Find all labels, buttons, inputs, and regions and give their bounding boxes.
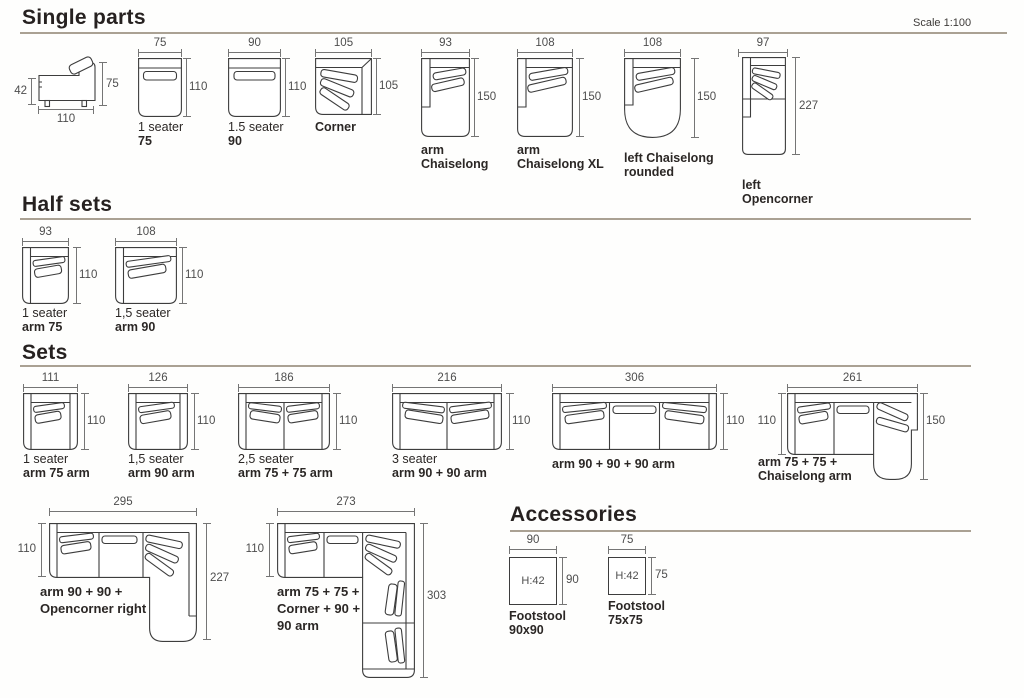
- top-view-left-opencorner: [742, 57, 786, 155]
- dim-width-set-216: 216: [392, 372, 502, 388]
- dim-line: [392, 387, 502, 388]
- dim-line-depth: [474, 58, 475, 137]
- dim-depth: 110: [79, 269, 97, 281]
- caption-set-186: 2,5 seater arm 75 + 75 arm: [238, 453, 333, 480]
- dim-width-corner: 105: [315, 37, 372, 53]
- dim-value: 108: [517, 37, 573, 50]
- dim-depth: 110: [512, 415, 530, 427]
- dim-width-set-273: 273: [277, 496, 415, 512]
- dim-depth: 227: [799, 100, 818, 112]
- dim-value: 90: [509, 534, 557, 547]
- top-view-footstool-75: H:42: [608, 557, 646, 595]
- top-view-halfset-15-seater: [115, 247, 177, 304]
- dim-line-depth: [194, 393, 195, 450]
- dim-width-halfset-108: 108: [115, 226, 177, 242]
- dim-line-depth-right: [923, 393, 924, 480]
- dim-value: 75: [608, 534, 646, 547]
- dim-depth: 110: [87, 415, 105, 427]
- dim-line-depth: [651, 557, 652, 595]
- dim-line: [787, 387, 918, 388]
- dim-line: [552, 387, 717, 388]
- side-view-sofa-drawing: [38, 60, 98, 108]
- dim-total-height: 75: [106, 78, 119, 90]
- dim-line: [115, 241, 177, 242]
- top-view-set-126: [128, 393, 188, 450]
- dim-line: [238, 387, 330, 388]
- dim-line-depth-right: [423, 523, 424, 678]
- top-view-arm-chaiselong-xl: [517, 58, 573, 137]
- caption-set-273: arm 75 + 75 + Corner + 90 + 90 arm: [277, 583, 360, 634]
- dim-width-footstool-75: 75: [608, 534, 646, 550]
- dim-line: [624, 52, 681, 53]
- section-rule: [20, 365, 971, 367]
- dim-line: [509, 549, 557, 550]
- caption-set-306: arm 90 + 90 + 90 arm: [552, 458, 675, 472]
- dim-width-15seater90: 90: [228, 37, 281, 53]
- dim-line-depth: [579, 58, 580, 137]
- caption-set-216: 3 seater arm 90 + 90 arm: [392, 453, 487, 480]
- dim-value: 306: [552, 372, 717, 385]
- caption-footstool-75: Footstool 75x75: [608, 600, 665, 627]
- dim-line: [277, 511, 415, 512]
- dim-depth: 110: [189, 81, 207, 93]
- dim-line-depth: [76, 247, 77, 304]
- dim-line: [228, 52, 281, 53]
- caption-set-295: arm 90 + 90 + Opencorner right: [40, 583, 146, 617]
- top-view-set-216: [392, 393, 502, 450]
- dim-seat-height: 42: [10, 85, 27, 97]
- dim-line: [38, 109, 94, 110]
- footstool-height-label: H:42: [615, 570, 638, 582]
- dim-depth: 105: [379, 80, 398, 92]
- top-view-15-seater-90: [228, 58, 281, 117]
- dim-line: [738, 52, 788, 53]
- dim-depth: 110: [288, 81, 306, 93]
- dim-line-depth: [509, 393, 510, 450]
- caption-set-261: arm 75 + 75 + Chaiselong arm: [758, 456, 852, 483]
- caption-halfset-1-seater: 1 seater arm 75: [22, 307, 67, 334]
- dim-line-depth: [182, 247, 183, 304]
- section-title-accessories: Accessories: [510, 503, 637, 527]
- dim-value: 273: [277, 496, 415, 509]
- dim-value: 261: [787, 372, 918, 385]
- dim-depth: 150: [582, 91, 601, 103]
- dim-width-halfset-93: 93: [22, 226, 69, 242]
- dim-value: 108: [624, 37, 681, 50]
- top-view-1-seater-75: [138, 58, 182, 117]
- dim-value: 97: [738, 37, 788, 50]
- dim-depth: 110: [339, 415, 357, 427]
- dim-depth: 110: [185, 269, 203, 281]
- dim-line: [517, 52, 573, 53]
- dim-value: 105: [315, 37, 372, 50]
- dim-width-set-306: 306: [552, 372, 717, 388]
- dim-width-1seater75: 75: [138, 37, 182, 53]
- dim-line: [608, 549, 646, 550]
- top-view-set-186: [238, 393, 330, 450]
- dim-depth-sideview: 110: [38, 109, 94, 126]
- top-view-footstool-90: H:42: [509, 557, 557, 605]
- section-title-half-sets: Half sets: [22, 193, 112, 217]
- dim-width-footstool-90: 90: [509, 534, 557, 550]
- dim-line-depth: [694, 58, 695, 138]
- caption-corner: Corner: [315, 121, 356, 135]
- dim-depth-left: 110: [10, 543, 36, 555]
- dim-value: 295: [49, 496, 197, 509]
- dim-line-depth: [795, 57, 796, 155]
- sofa-spec-sheet: Single parts Scale 1:100 42 75 110 75 11…: [0, 0, 1024, 698]
- caption-arm-chaiselong: arm Chaiselong: [421, 144, 488, 171]
- dim-line: [421, 52, 470, 53]
- dim-depth: 150: [477, 91, 496, 103]
- dim-line-depth-left: [781, 393, 782, 455]
- dim-line-depth-left: [41, 523, 42, 577]
- caption-arm-chaiselong-xl: arm Chaiselong XL: [517, 144, 604, 171]
- caption-left-opencorner: left Opencorner: [742, 179, 813, 206]
- dim-width-set-186: 186: [238, 372, 330, 388]
- dim-depth: 75: [655, 569, 668, 581]
- dim-value: 186: [238, 372, 330, 385]
- caption-set-126: 1,5 seater arm 90 arm: [128, 453, 195, 480]
- dim-depth-right: 303: [427, 590, 446, 602]
- dim-depth: 150: [697, 91, 716, 103]
- top-view-left-chaiselong-rounded: [624, 58, 681, 138]
- dim-line: [128, 387, 188, 388]
- dim-line-depth: [186, 58, 187, 117]
- top-view-arm-chaiselong: [421, 58, 470, 137]
- dim-width-set-111: 111: [23, 372, 78, 388]
- dim-line: [49, 511, 197, 512]
- section-rule: [20, 218, 971, 220]
- dim-depth: 90: [566, 574, 579, 586]
- dim-value: 75: [138, 37, 182, 50]
- dim-width-set-295: 295: [49, 496, 197, 512]
- dim-depth-right: 227: [210, 572, 229, 584]
- dim-width-set-126: 126: [128, 372, 188, 388]
- dim-value: 90: [228, 37, 281, 50]
- dim-line-depth: [336, 393, 337, 450]
- dim-value: 93: [22, 226, 69, 239]
- section-rule: [510, 530, 971, 532]
- dim-value: 93: [421, 37, 470, 50]
- caption-set-111: 1 seater arm 75 arm: [23, 453, 90, 480]
- dim-value: 111: [23, 372, 78, 385]
- dim-depth-right: 150: [926, 415, 945, 427]
- section-rule: [20, 32, 1007, 34]
- dim-depth: 110: [726, 415, 744, 427]
- section-title-sets: Sets: [22, 341, 68, 365]
- caption-1-seater-75: 1 seater 75: [138, 121, 183, 148]
- dim-width-set-261: 261: [787, 372, 918, 388]
- scale-note: Scale 1:100: [913, 17, 971, 29]
- dim-line-depth: [723, 393, 724, 450]
- dim-line-depth-left: [269, 523, 270, 577]
- dim-value: 216: [392, 372, 502, 385]
- dim-line: [315, 52, 372, 53]
- top-view-set-111: [23, 393, 78, 450]
- top-view-halfset-1-seater: [22, 247, 69, 304]
- dim-width-chaiselong-rounded: 108: [624, 37, 681, 53]
- section-title-single-parts: Single parts: [22, 6, 146, 30]
- caption-footstool-90: Footstool 90x90: [509, 610, 566, 637]
- caption-15-seater-90: 1.5 seater 90: [228, 121, 284, 148]
- caption-left-chaiselong-rounded: left Chaiselong rounded: [624, 152, 714, 179]
- top-view-corner: [315, 58, 372, 115]
- dim-width-left-opencorner: 97: [738, 37, 788, 53]
- dim-value: 126: [128, 372, 188, 385]
- footstool-height-label: H:42: [521, 575, 544, 587]
- dim-value: 110: [38, 113, 94, 126]
- dim-depth-left: 110: [238, 543, 264, 555]
- caption-halfset-15-seater: 1,5 seater arm 90: [115, 307, 171, 334]
- top-view-set-306: [552, 393, 717, 450]
- dim-width-arm-chaiselong: 93: [421, 37, 470, 53]
- dim-line-depth: [376, 58, 377, 115]
- dim-line: [138, 52, 182, 53]
- dim-line-depth: [285, 58, 286, 117]
- dim-line: [23, 387, 78, 388]
- dim-depth: 110: [197, 415, 215, 427]
- dim-depth-left: 110: [748, 415, 776, 427]
- dim-line-depth-right: [206, 523, 207, 640]
- dim-width-arm-chaiselong-xl: 108: [517, 37, 573, 53]
- dim-line-depth: [84, 393, 85, 450]
- dim-line-seat-height: [31, 78, 32, 105]
- dim-line: [22, 241, 69, 242]
- dim-line-depth: [562, 557, 563, 605]
- dim-line-total-height: [102, 62, 103, 106]
- dim-value: 108: [115, 226, 177, 239]
